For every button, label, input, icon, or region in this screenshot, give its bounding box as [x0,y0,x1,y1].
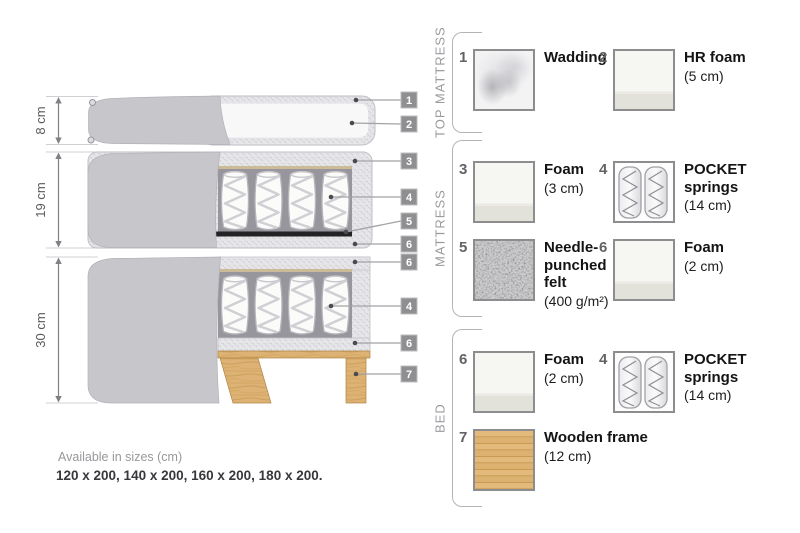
pocket-springs-swatch [613,351,675,413]
foam-swatch [613,239,675,301]
legend-item-felt: 5 Needle-punched felt (400 g/m²) [459,239,622,310]
section-title-bed: BED [430,329,450,507]
item-size: (2 cm) [684,258,762,275]
item-name: Foam [684,239,762,257]
legend-item-hr-foam: 2 HR foam (5 cm) [599,49,762,111]
legend-item-bed-pocket-springs: 4 POCKET springs (14 cm) [599,351,762,413]
section-title-top-mattress: TOP MATTRESS [430,32,450,133]
item-number: 3 [459,162,473,177]
available-sizes-label: Available in sizes (cm) [58,450,182,464]
legend-item-foam2: 6 Foam (2 cm) [599,239,762,301]
foam-swatch [613,49,675,111]
item-name: POCKET springs [684,351,762,386]
wadding-swatch [473,49,535,111]
section-title-mattress: MATTRESS [430,140,450,317]
mattress-infographic: 8 cm 19 cm 30 cm [0,0,800,533]
item-size: (12 cm) [544,448,664,465]
item-name: Wooden frame [544,429,664,447]
item-number: 6 [459,352,473,367]
legend-item-pocket-springs: 4 POCKET springs (14 cm) [599,161,762,223]
wood-swatch [473,429,535,491]
legend-item-foam3: 3 Foam (3 cm) [459,161,622,223]
pocket-springs-swatch [613,161,675,223]
item-number: 6 [599,240,613,255]
felt-swatch [473,239,535,301]
item-number: 1 [459,50,473,65]
available-sizes-values: 120 x 200, 140 x 200, 160 x 200, 180 x 2… [56,468,323,483]
item-size: (5 cm) [684,68,762,85]
item-size: (14 cm) [684,387,762,404]
legend-item-wooden-frame: 7 Wooden frame (12 cm) [459,429,664,491]
item-size: (14 cm) [684,197,762,214]
item-number: 2 [599,50,613,65]
legend-item-wadding: 1 Wadding [459,49,622,111]
item-name: HR foam [684,49,762,67]
item-number: 7 [459,430,473,445]
foam-swatch [473,351,535,413]
item-name: POCKET springs [684,161,762,196]
legend-item-bed-foam: 6 Foam (2 cm) [459,351,622,413]
item-number: 4 [599,352,613,367]
foam-swatch [473,161,535,223]
item-number: 4 [599,162,613,177]
item-number: 5 [459,240,473,255]
